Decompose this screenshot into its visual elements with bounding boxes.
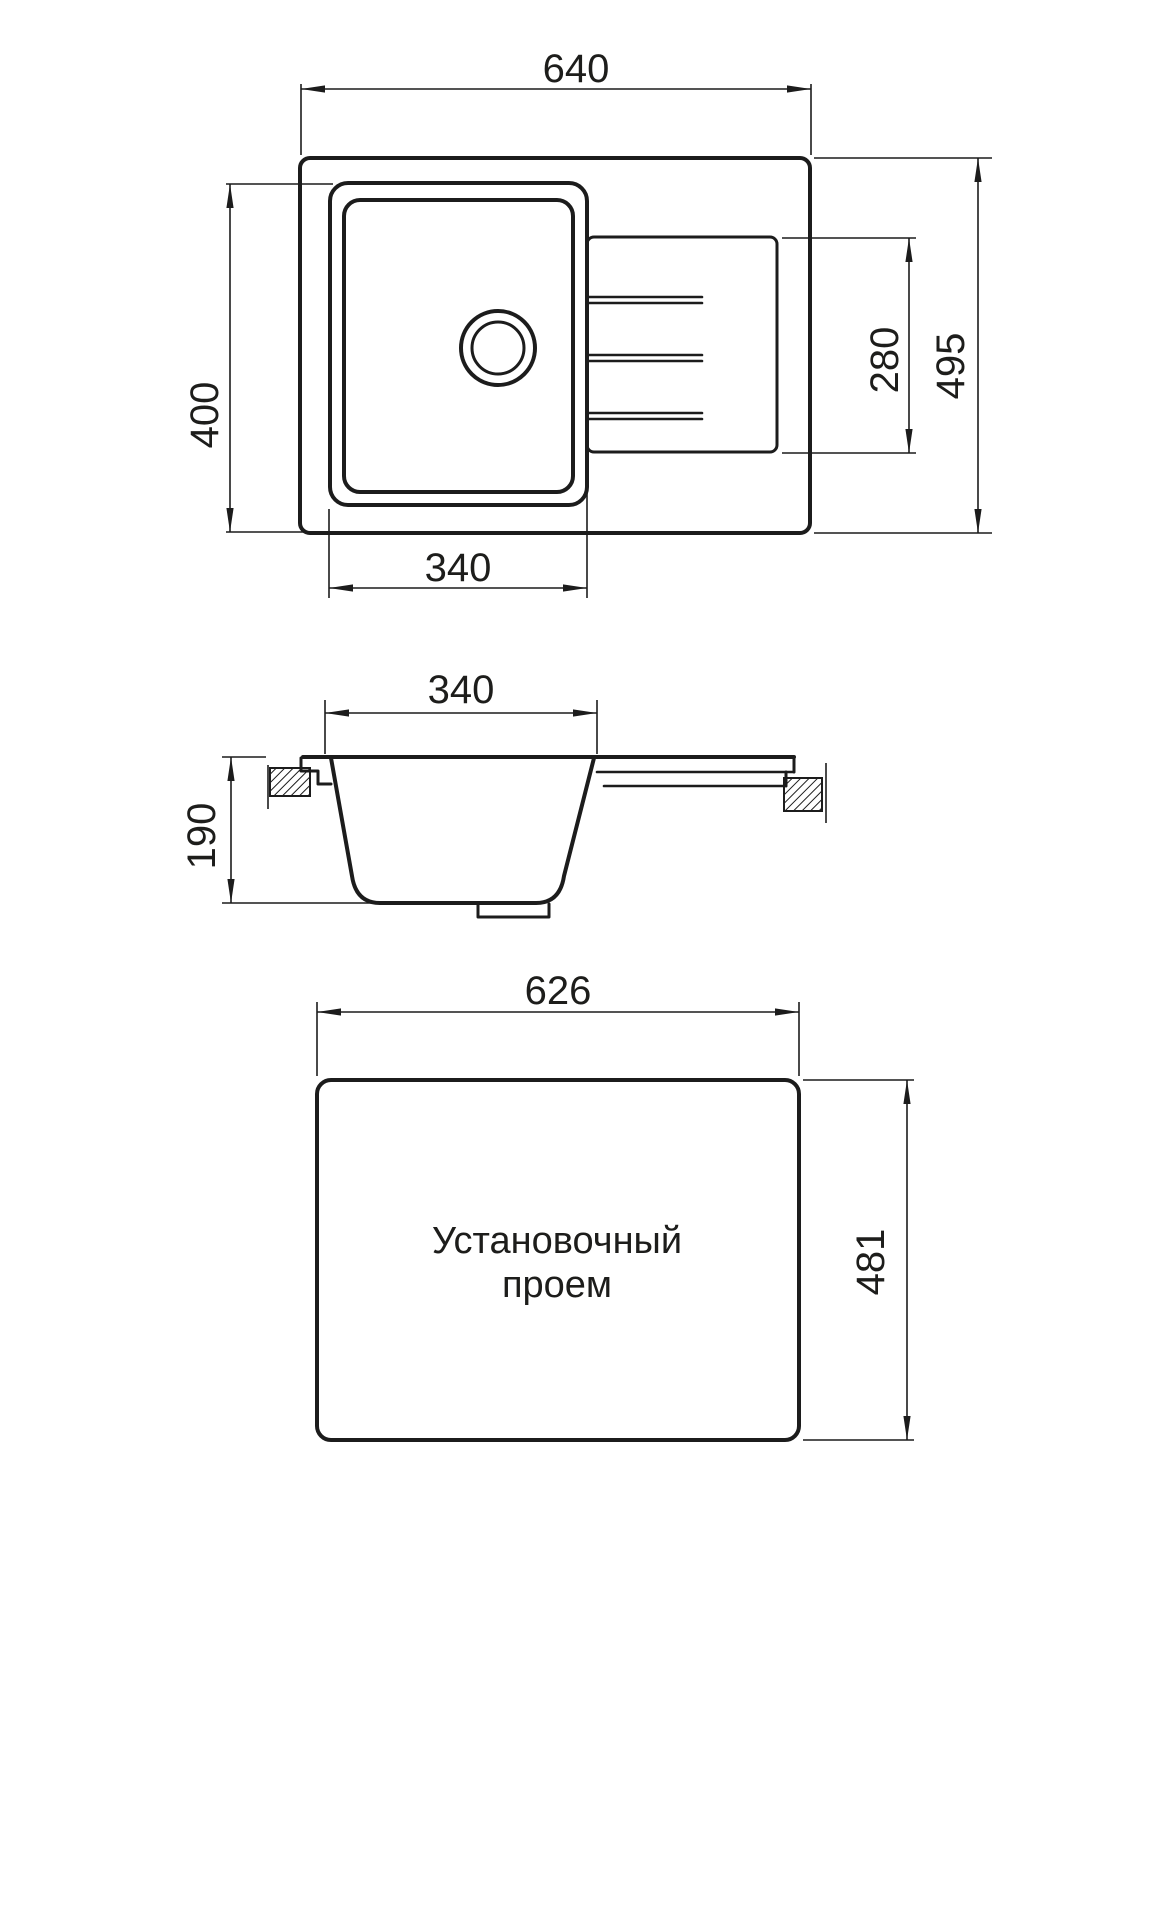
- cutout-caption-line2: проем: [502, 1264, 612, 1306]
- drainboard-profile: [597, 772, 794, 786]
- dim-bowl-top-width: 340: [325, 668, 597, 754]
- dim-label-400: 400: [183, 382, 227, 449]
- dim-label-280: 280: [863, 327, 907, 394]
- cutout-view: 626 481 Установочный проем: [317, 969, 914, 1440]
- section-view: 340 190: [180, 668, 826, 917]
- top-view: 640 400 340 280 495: [183, 47, 992, 598]
- dim-label-340-section: 340: [428, 668, 495, 712]
- dim-overall-width: 640: [301, 47, 811, 155]
- dim-label-626: 626: [525, 969, 592, 1013]
- drain-stub: [478, 904, 549, 917]
- drawing-page: 640 400 340 280 495: [0, 0, 1150, 1920]
- cutout-caption-line1: Установочный: [432, 1220, 682, 1262]
- dim-label-495: 495: [929, 333, 973, 400]
- dim-cutout-height: 481: [803, 1080, 914, 1440]
- bowl-rim-outline: [330, 183, 587, 505]
- dim-label-340-bowl: 340: [425, 546, 492, 590]
- dim-cutout-width: 626: [317, 969, 799, 1076]
- bowl-section-profile: [331, 758, 594, 903]
- drawing-canvas: 640 400 340 280 495: [0, 0, 1150, 1920]
- dim-label-190: 190: [180, 803, 224, 870]
- dim-label-640: 640: [543, 47, 610, 91]
- dim-label-481: 481: [849, 1229, 893, 1296]
